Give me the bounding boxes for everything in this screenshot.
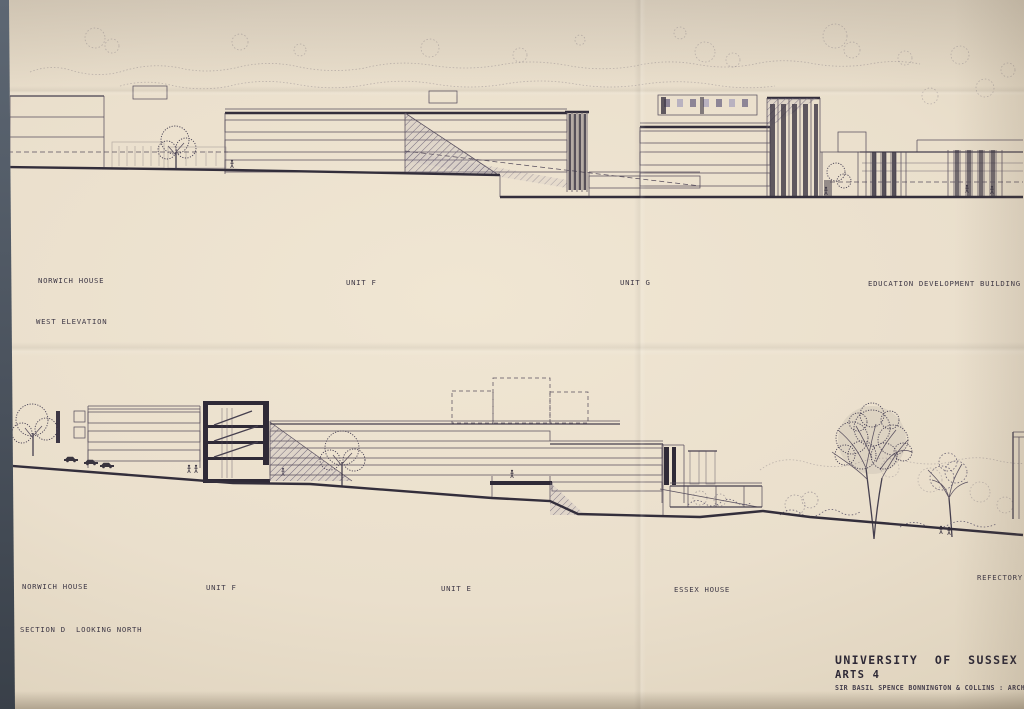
section-label-essex-house: ESSEX HOUSE (674, 586, 730, 593)
section-large-tree (832, 403, 912, 539)
section-label-unit-e: UNIT E (441, 585, 472, 592)
west-education-development-building (830, 132, 1023, 196)
section-caption: SECTION D LOOKING NORTH (20, 626, 142, 633)
west-lower-wing (589, 172, 700, 197)
west-unit-g (640, 95, 770, 198)
section-small-tree (928, 453, 968, 537)
west-label-education-development-building: EDUCATION DEVELOPMENT BUILDING (868, 280, 1021, 287)
elevation-and-section-drawings (0, 0, 1024, 709)
west-label-unit-g: UNIT G (620, 279, 651, 286)
drawing-sheet: NORWICH HOUSE UNIT F UNIT G EDUCATION DE… (0, 0, 1024, 709)
section-label-refectory: REFECTORY (977, 574, 1023, 581)
section-norwich-house (56, 406, 200, 468)
title-arts4: ARTS 4 (835, 670, 880, 681)
west-elevation-caption: WEST ELEVATION (36, 318, 107, 325)
title-architects: SIR BASIL SPENCE BONNINGTON & COLLINS : … (835, 685, 1024, 692)
west-entrance-court (820, 152, 862, 197)
west-norwich-house (10, 86, 167, 167)
west-background-buildings (112, 142, 226, 168)
west-label-unit-f: UNIT F (346, 279, 377, 286)
section-label-unit-f: UNIT F (206, 584, 237, 591)
title-university: UNIVERSITY OF SUSSEX (835, 655, 1018, 667)
photo-of-architectural-drawing: NORWICH HOUSE UNIT F UNIT G EDUCATION DE… (0, 0, 1024, 709)
west-elevation-drawing (8, 86, 1023, 198)
section-unit-e (270, 378, 684, 515)
section-refectory-edge (1013, 432, 1024, 519)
background-landscape-sketch (30, 24, 1015, 104)
section-label-norwich-house: NORWICH HOUSE (22, 583, 88, 590)
west-stair-fins-a (565, 112, 589, 192)
section-tree-left (12, 404, 57, 456)
west-stair-fins-b (767, 98, 820, 198)
west-label-norwich-house: NORWICH HOUSE (38, 277, 104, 284)
section-d-drawing (0, 378, 1024, 539)
